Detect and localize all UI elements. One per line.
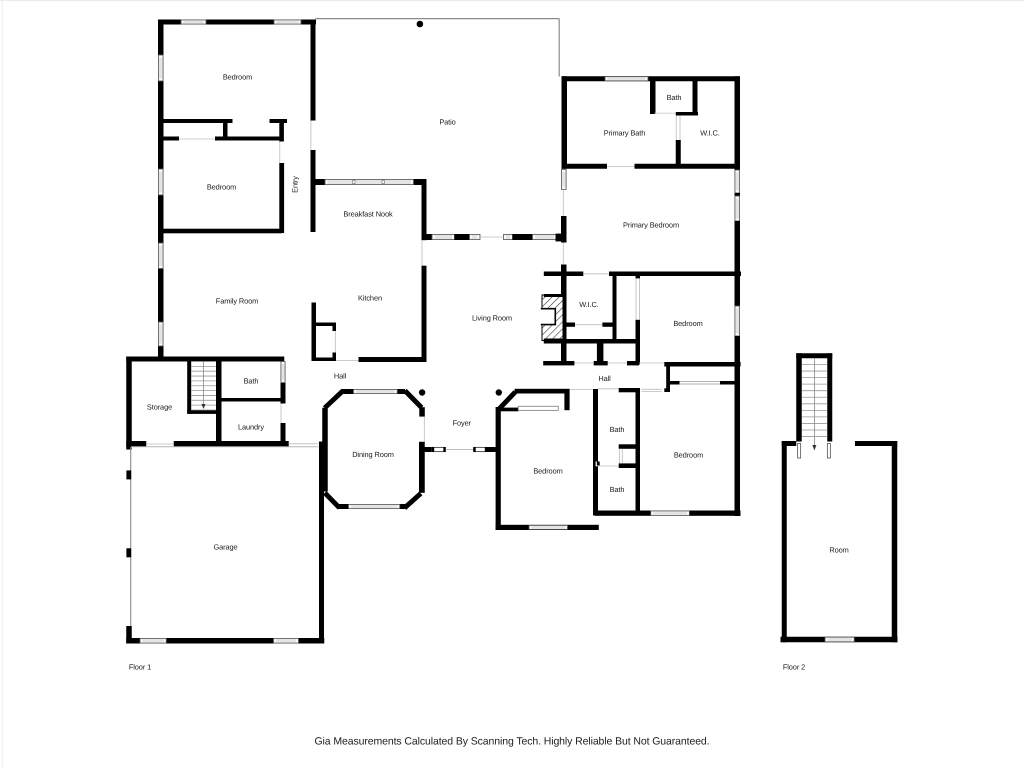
svg-text:Bath: Bath	[610, 485, 625, 494]
svg-text:Bedroom: Bedroom	[207, 183, 236, 192]
svg-text:W.I.C.: W.I.C.	[579, 300, 599, 309]
svg-text:Storage: Storage	[147, 403, 172, 412]
svg-text:Bedroom: Bedroom	[673, 319, 702, 328]
svg-text:Laundry: Laundry	[238, 423, 264, 432]
svg-text:Primary Bath: Primary Bath	[604, 129, 646, 138]
svg-text:Gia Measurements Calculated By: Gia Measurements Calculated By Scanning …	[314, 736, 709, 748]
svg-text:W.I.C.: W.I.C.	[700, 129, 720, 138]
svg-text:Hall: Hall	[334, 372, 347, 381]
svg-text:Bath: Bath	[244, 377, 259, 386]
svg-text:Bedroom: Bedroom	[674, 451, 703, 460]
svg-text:Primary Bedroom: Primary Bedroom	[623, 221, 679, 230]
svg-text:Bedroom: Bedroom	[533, 467, 562, 476]
svg-text:Kitchen: Kitchen	[358, 294, 382, 303]
svg-text:Dining Room: Dining Room	[352, 450, 394, 459]
svg-text:Room: Room	[829, 546, 848, 555]
svg-text:Patio: Patio	[439, 118, 455, 127]
svg-text:Family Room: Family Room	[216, 297, 258, 306]
svg-text:Living Room: Living Room	[472, 314, 512, 323]
svg-text:Breakfast Nook: Breakfast Nook	[343, 210, 393, 219]
svg-text:Floor 2: Floor 2	[783, 663, 805, 672]
svg-text:Floor 1: Floor 1	[129, 663, 151, 672]
svg-text:Entry: Entry	[291, 176, 300, 193]
svg-text:Foyer: Foyer	[453, 419, 472, 428]
svg-text:Hall: Hall	[598, 374, 611, 383]
svg-text:Bath: Bath	[667, 93, 682, 102]
svg-text:Garage: Garage	[213, 543, 237, 552]
svg-text:Bedroom: Bedroom	[223, 73, 252, 82]
svg-text:Bath: Bath	[610, 425, 625, 434]
